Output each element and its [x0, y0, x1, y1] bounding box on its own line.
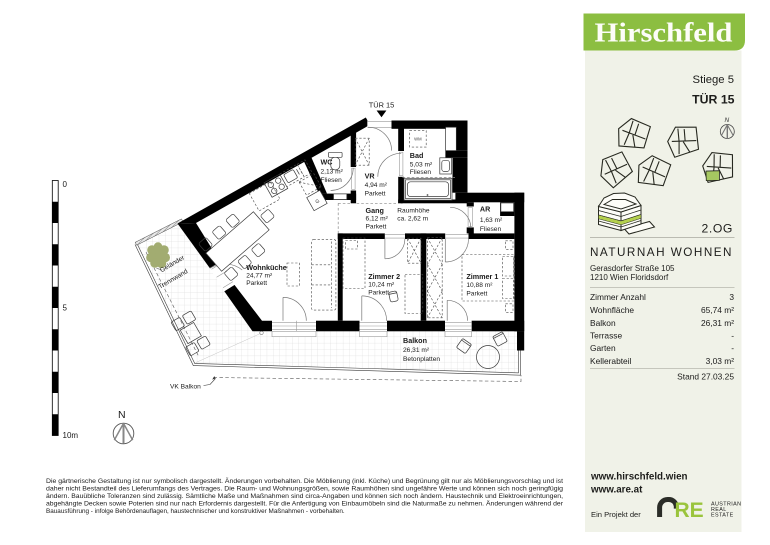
svg-text:VK Balkon: VK Balkon [170, 384, 201, 391]
svg-text:www.hirschfeld.wien: www.hirschfeld.wien [590, 472, 688, 483]
svg-text:ESTATE: ESTATE [711, 513, 734, 519]
svg-text:1210 Wien Floridsdorf: 1210 Wien Floridsdorf [590, 273, 669, 282]
svg-text:RE: RE [675, 499, 704, 522]
svg-text:abgehängte Decken sowie Poteri: abgehängte Decken sowie Poterien sind nu… [46, 500, 563, 508]
svg-text:5: 5 [63, 304, 68, 313]
svg-text:VR: VR [365, 172, 376, 181]
svg-text:Balkon: Balkon [590, 318, 616, 328]
svg-text:-: - [731, 343, 734, 353]
svg-text:10,24 m²: 10,24 m² [368, 281, 395, 288]
svg-text:-: - [731, 331, 734, 341]
svg-text:WC: WC [321, 158, 333, 167]
svg-text:Fliesen: Fliesen [321, 177, 343, 184]
svg-text:1,63 m²: 1,63 m² [480, 217, 503, 224]
svg-text:6,12 m²: 6,12 m² [366, 215, 389, 222]
svg-text:Wohnfläche: Wohnfläche [590, 305, 634, 315]
svg-text:Parkett: Parkett [365, 190, 386, 197]
svg-text:Zimmer 2: Zimmer 2 [368, 272, 400, 281]
svg-text:Balkon: Balkon [403, 336, 427, 345]
svg-text:10m: 10m [63, 431, 79, 440]
svg-text:Bauausführung - infolge Behörd: Bauausführung - infolge Behördenauflagen… [46, 508, 345, 515]
svg-text:TÜR 15: TÜR 15 [692, 92, 735, 107]
svg-text:WM: WM [414, 137, 422, 142]
svg-text:Zimmer Anzahl: Zimmer Anzahl [590, 292, 646, 302]
svg-text:Gang: Gang [366, 206, 384, 215]
svg-text:Gerasdorfer Straße 105: Gerasdorfer Straße 105 [590, 264, 675, 273]
svg-text:ca. 2,62 m: ca. 2,62 m [397, 216, 428, 223]
svg-text:Parkett: Parkett [246, 280, 267, 287]
svg-text:26,31 m²: 26,31 m² [403, 347, 430, 354]
svg-text:Betonplatten: Betonplatten [403, 356, 440, 363]
svg-text:Hirschfeld: Hirschfeld [595, 17, 733, 48]
svg-text:3,03 m²: 3,03 m² [706, 356, 735, 366]
svg-text:Wohnküche: Wohnküche [246, 263, 287, 272]
svg-text:Fliesen: Fliesen [410, 169, 432, 176]
svg-text:0: 0 [63, 180, 68, 189]
svg-text:Kellerabteil: Kellerabteil [590, 356, 632, 366]
svg-text:Bad: Bad [410, 151, 424, 160]
svg-text:Garten: Garten [590, 343, 616, 353]
svg-text:Raumhöhe: Raumhöhe [397, 207, 430, 214]
svg-text:daher nicht Bestandteil des Li: daher nicht Bestandteil des Lieferumfang… [46, 486, 564, 493]
svg-text:2.OG: 2.OG [701, 222, 733, 236]
svg-text:ändern. Bauübliche Toleranzen: ändern. Bauübliche Toleranzen sind zuläs… [46, 493, 563, 500]
svg-text:Stand 27.03.25: Stand 27.03.25 [677, 372, 734, 382]
svg-text:N: N [118, 409, 126, 421]
svg-text:Ein Projekt der: Ein Projekt der [591, 510, 641, 519]
svg-text:Parkett: Parkett [466, 291, 487, 298]
svg-text:26,31 m²: 26,31 m² [701, 318, 734, 328]
svg-text:Zimmer 1: Zimmer 1 [466, 272, 498, 281]
svg-text:10,88 m²: 10,88 m² [466, 282, 493, 289]
svg-text:Parkett: Parkett [366, 223, 387, 230]
svg-text:TÜR 15: TÜR 15 [369, 101, 394, 110]
svg-text:NATURNAH WOHNEN: NATURNAH WOHNEN [590, 245, 733, 259]
svg-text:AR: AR [480, 204, 491, 213]
svg-text:www.are.at: www.are.at [590, 485, 643, 496]
svg-text:65,74 m²: 65,74 m² [701, 305, 734, 315]
svg-text:5,03 m²: 5,03 m² [410, 161, 433, 168]
svg-text:4,94 m²: 4,94 m² [365, 182, 388, 189]
svg-text:24,77 m²: 24,77 m² [246, 272, 273, 279]
svg-text:Die gärtnerische Gestaltung is: Die gärtnerische Gestaltung ist nur symb… [46, 477, 563, 485]
svg-text:2,13 m²: 2,13 m² [321, 169, 344, 176]
svg-text:Fliesen: Fliesen [480, 226, 502, 233]
svg-text:N: N [725, 117, 730, 124]
svg-text:Parkett: Parkett [368, 290, 389, 297]
svg-text:Terrasse: Terrasse [590, 331, 622, 341]
svg-text:3: 3 [729, 292, 734, 302]
svg-text:Stiege 5: Stiege 5 [693, 74, 734, 86]
